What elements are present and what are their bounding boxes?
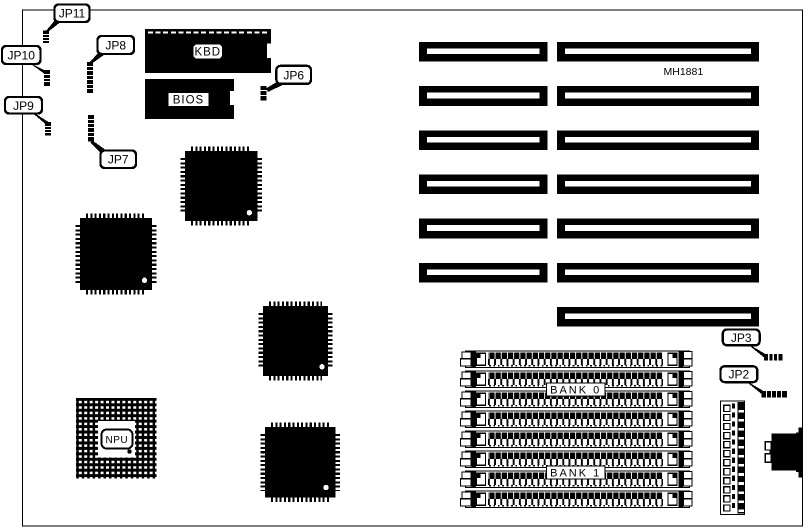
svg-text:JP2: JP2 [729, 368, 750, 382]
svg-text:KBD: KBD [194, 47, 221, 59]
svg-text:JP9: JP9 [13, 99, 34, 113]
svg-text:JP6: JP6 [283, 68, 304, 82]
svg-text:MH1881: MH1881 [664, 66, 704, 78]
svg-text:JP8: JP8 [105, 39, 126, 53]
svg-text:JP7: JP7 [108, 153, 129, 167]
svg-text:BIOS: BIOS [173, 95, 204, 107]
svg-text:BANK 0: BANK 0 [550, 384, 601, 396]
svg-text:JP10: JP10 [8, 49, 36, 63]
svg-text:JP3: JP3 [731, 331, 752, 345]
svg-text:JP11: JP11 [59, 7, 86, 21]
svg-text:NPU: NPU [105, 435, 128, 446]
svg-text:BANK 1: BANK 1 [550, 467, 601, 479]
